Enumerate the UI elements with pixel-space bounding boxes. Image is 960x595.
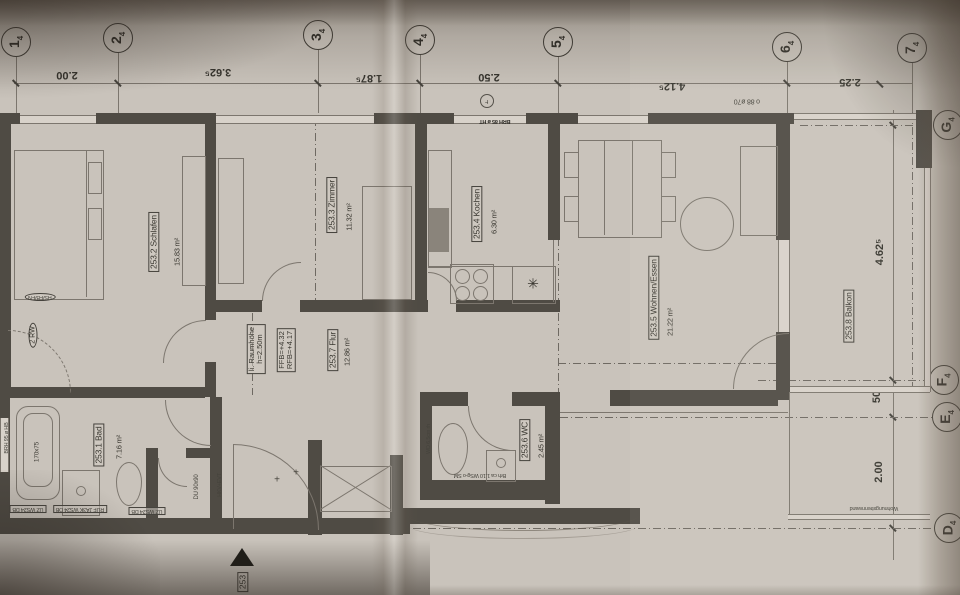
room-area-zimmer: 11.32 m² — [345, 203, 354, 230]
dim-text: 3.62⁵ — [205, 66, 232, 78]
floor-plan-photo: 14 24 34 44 54 64 74 G4 F4 E4 D4 2.00 3.… — [0, 0, 960, 595]
entrance-door-leaf — [233, 444, 234, 529]
smoke-detector-note: 2 RW — [29, 322, 38, 347]
top-note: o 88 ø70 — [734, 98, 760, 105]
wall-shower — [146, 448, 158, 458]
bed-line — [86, 151, 87, 297]
window-wohnen — [578, 115, 648, 124]
room-area-wc: 2.45 m² — [537, 434, 546, 458]
room-area-kochen: 6.30 m² — [490, 210, 499, 234]
schlafen-door-arc — [163, 320, 206, 363]
wardrobe — [218, 158, 244, 284]
burner — [473, 269, 488, 284]
wall-kochen-wohnen — [548, 113, 560, 240]
axis-bubble-5: 54 — [543, 27, 573, 57]
dim-text: 2.00 — [56, 69, 77, 81]
wc-note: Brh ca 1.10 WSg-o SM — [454, 472, 506, 478]
photo-shadow-top-left — [0, 0, 340, 100]
apartment-number-tag: 253 — [237, 572, 248, 592]
balcony-door-window — [778, 240, 790, 332]
axis-bubble-D: D4 — [934, 513, 960, 543]
axis-bubble-4: 44 — [405, 25, 435, 55]
chair — [661, 152, 676, 178]
wall-segment — [776, 113, 790, 240]
toilet-wc — [438, 423, 468, 475]
burner — [455, 269, 470, 284]
balcony-parapet — [790, 386, 930, 393]
basin-drain — [76, 486, 86, 496]
dining-table — [578, 140, 662, 238]
gridline-axis-E — [560, 417, 932, 418]
axis-stem-6 — [787, 62, 788, 113]
sink-symbol: ✳ — [527, 276, 539, 293]
kitchen-sink-unit — [429, 208, 449, 252]
wall-wohnen-south — [610, 390, 778, 406]
wc-door-arc — [468, 406, 513, 451]
chair — [661, 196, 676, 222]
axis-bubble-G: G4 — [933, 110, 960, 140]
chair — [564, 152, 579, 178]
room-area-bad: 7.16 m² — [115, 435, 124, 459]
dim-text: 2.50 — [478, 71, 499, 83]
wardrobe — [362, 186, 412, 300]
uz-note: UZ WS24 DB — [128, 507, 165, 515]
wall-shower — [186, 448, 212, 458]
room-label-flur: 253.7 Flur — [327, 329, 338, 371]
wall-core-south — [0, 518, 410, 534]
wall-schlafen-flur — [205, 113, 216, 320]
gridline-axis-3 — [315, 118, 316, 300]
trennwand-note: Wohnungstrennwand — [850, 505, 898, 511]
dim-line-right — [893, 110, 894, 560]
wall-segment — [374, 113, 454, 124]
dim-text: 2.00 — [873, 461, 885, 482]
dim-text: 2.25 — [839, 76, 860, 88]
brh-note: BRH 85 ø HT — [479, 118, 510, 124]
thin-line — [560, 412, 788, 413]
cross-mark: + — [274, 475, 280, 486]
axis-bubble-2: 24 — [103, 23, 133, 53]
table-line — [632, 141, 633, 235]
room-label-schlafen: 253.2 Schlafen — [148, 212, 159, 272]
dim-text: 4.62⁵ — [874, 239, 886, 266]
dim-tick — [876, 80, 883, 87]
axis-stem-7 — [912, 63, 913, 112]
wall-segment — [96, 113, 216, 124]
paper-warp-line — [408, 512, 638, 539]
photo-shadow-bottom — [0, 540, 430, 595]
dim-line-top — [14, 83, 912, 84]
dim-text: 1.87⁵ — [356, 72, 383, 84]
room-label-kochen: 253.4 Kochen — [471, 186, 482, 242]
axis-bubble-1: 14 — [1, 27, 31, 57]
table-line — [604, 141, 605, 235]
wardrobe — [182, 156, 206, 286]
photo-shadow-top-edge — [0, 0, 960, 26]
brh-left-note: BRH 95 ø HB — [4, 422, 10, 453]
room-label-zimmer: 253.3 Zimmer — [326, 177, 337, 233]
gridline-axis-7 — [912, 112, 913, 390]
axis-bubble-3: 34 — [303, 20, 333, 50]
thin-line — [788, 514, 930, 520]
wd-note: WD 6,5cm rh — [426, 424, 432, 454]
hs-note: HS/FB/FN — [24, 293, 55, 301]
thin-line — [789, 392, 790, 518]
burner — [473, 286, 488, 301]
window-schlafen — [20, 115, 96, 124]
window-f-circle: F — [480, 94, 494, 108]
wall-zimmer-flur — [300, 300, 428, 312]
axis-bubble-E: E4 — [932, 402, 960, 432]
raumhoehe-note: li. Raumhöheh=2.50m — [247, 324, 266, 374]
wall-wc-south — [420, 480, 560, 500]
wall-segment — [648, 113, 794, 124]
room-label-wohnen: 253.5 Wohnen/Essen — [648, 256, 659, 340]
axis-bubble-7: 74 — [897, 33, 927, 63]
pillow — [88, 162, 102, 194]
balcony-pier — [916, 110, 932, 168]
entrance-triangle — [230, 548, 254, 566]
bad-door-arc — [165, 400, 211, 446]
burner — [455, 286, 470, 301]
axis-bubble-F: F4 — [929, 365, 959, 395]
sideboard — [740, 146, 778, 236]
room-area-wohnen: 21.22 m² — [666, 308, 675, 336]
wall-entry-west — [210, 397, 222, 532]
room-label-wc: 253.6 WC — [519, 419, 530, 461]
shower-door-arc — [158, 458, 187, 487]
pillow — [88, 208, 102, 240]
ffb-rfb-note: FFB=+4.32RFB=+4.17 — [277, 328, 296, 372]
basin-drain — [496, 458, 506, 468]
axis-bubble-6: 64 — [772, 32, 802, 62]
shower-size: DU 90x90 — [194, 474, 200, 499]
wall-zimmer-kochen — [415, 113, 427, 300]
toilet-bad — [116, 462, 142, 506]
balcony-parapet — [794, 113, 930, 120]
uz-note: UZ WS24 DB — [9, 505, 46, 513]
chair — [564, 196, 579, 222]
room-area-flur: 12.86 m² — [343, 338, 352, 366]
entrance-door-arc — [233, 444, 319, 530]
window-zimmer — [216, 115, 374, 124]
wall-segment — [205, 362, 216, 397]
dashed-swing-arc — [8, 330, 71, 393]
bathtub-size: 170x75 — [34, 442, 41, 462]
zimmer-door-arc — [262, 262, 301, 301]
uz-note: RUF JA3K WS24 DB — [53, 505, 107, 513]
wall-zimmer-flur — [205, 300, 262, 312]
balcony-door-arc — [733, 333, 789, 389]
dim-text: 4.12⁵ — [659, 80, 686, 92]
round-table — [680, 197, 734, 251]
hkv-note: HKV+EVT — [217, 473, 223, 497]
gridline-axis-G — [800, 125, 932, 126]
room-label-bad: 253.1 Bad — [93, 424, 104, 467]
photo-shadow-bottom-right — [430, 585, 960, 595]
cross-mark: + — [293, 468, 299, 479]
room-area-schlafen: 15.83 m² — [173, 238, 182, 266]
room-label-balkon: 253.8 Balkon — [843, 289, 854, 342]
